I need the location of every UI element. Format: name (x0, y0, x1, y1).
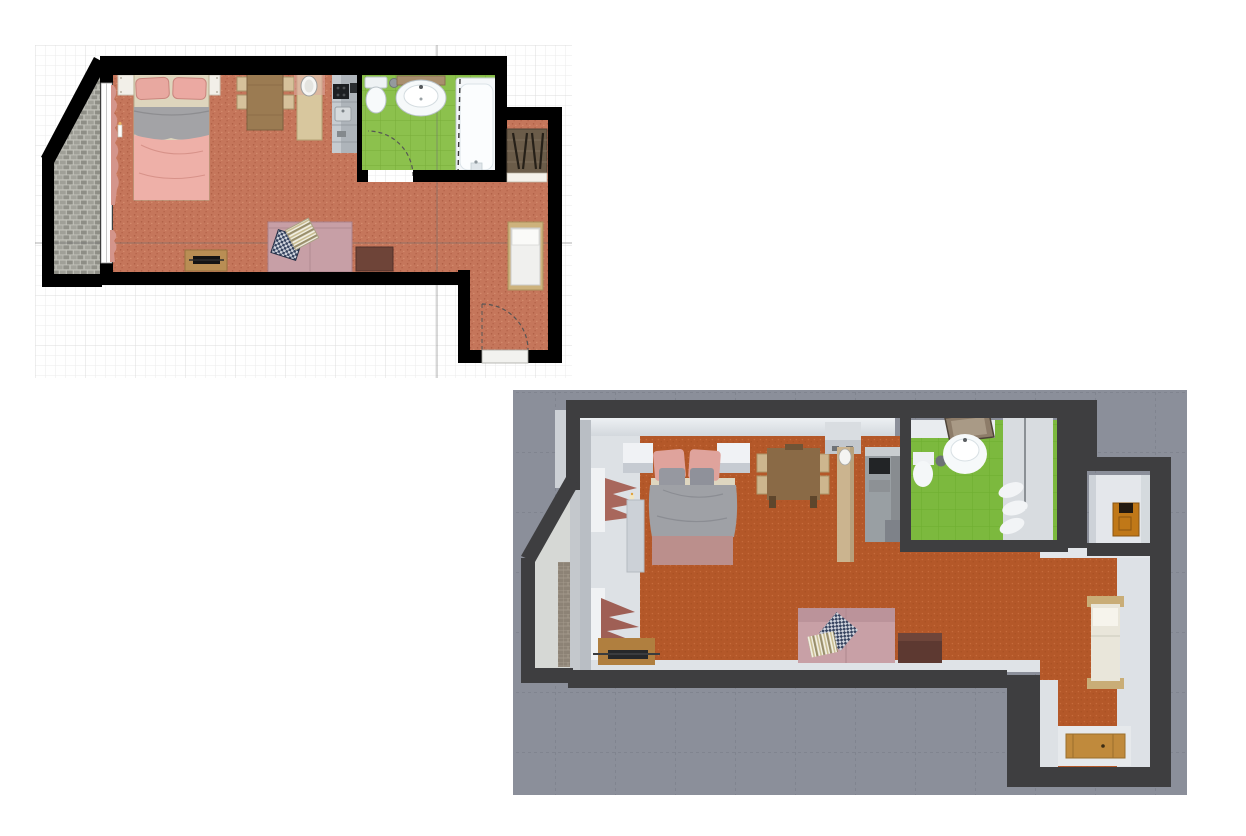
double-bed[interactable] (134, 74, 209, 200)
niche-room[interactable] (1089, 475, 1150, 543)
nightstand-left-3d[interactable] (623, 443, 653, 473)
single-bed[interactable] (508, 222, 543, 290)
washbasin-3d[interactable] (943, 434, 987, 474)
view3d-canvas (513, 390, 1187, 795)
coat-closet[interactable] (507, 129, 547, 173)
sofa[interactable] (268, 218, 352, 272)
bed-blanket-gray (134, 107, 209, 140)
washbasin[interactable] (396, 76, 446, 116)
candle-3d[interactable] (630, 495, 635, 500)
shower-cabin[interactable] (996, 416, 1053, 542)
single-bed-3d[interactable] (1087, 596, 1124, 689)
wardrobe-panel[interactable] (627, 493, 644, 572)
niche-cabinet[interactable] (1113, 503, 1139, 536)
plan2d-view (35, 45, 572, 378)
coffee-table[interactable] (356, 247, 393, 271)
kitchen-sink[interactable] (335, 107, 351, 121)
cooktop[interactable] (333, 84, 349, 99)
bed-duvet-pink (134, 135, 209, 200)
column-wardrobe-mirror[interactable] (837, 447, 854, 562)
toilet[interactable] (365, 77, 387, 113)
coffee-table-3d[interactable] (898, 633, 942, 663)
plan2d-canvas (35, 45, 572, 378)
cooktop-3d[interactable] (869, 458, 890, 474)
tv-stand-3d[interactable] (593, 638, 660, 665)
view3d-view (513, 390, 1187, 795)
toilet-3d[interactable] (913, 452, 934, 487)
dining-table-3d[interactable] (767, 444, 820, 508)
bathtub[interactable] (456, 78, 497, 177)
kitchen-counter-3d[interactable] (865, 447, 903, 542)
dining-table[interactable] (247, 72, 283, 130)
wardrobe-with-mirror[interactable] (294, 73, 325, 140)
kitchen-counter[interactable] (332, 75, 357, 153)
door-threshold[interactable] (482, 350, 528, 363)
nightstand-right-3d[interactable] (717, 443, 750, 473)
page-background (0, 0, 1246, 836)
closet-threshold (507, 173, 547, 182)
sofa-3d[interactable] (798, 608, 895, 663)
entry-door[interactable] (1066, 734, 1125, 758)
tv-stand[interactable] (185, 250, 227, 271)
